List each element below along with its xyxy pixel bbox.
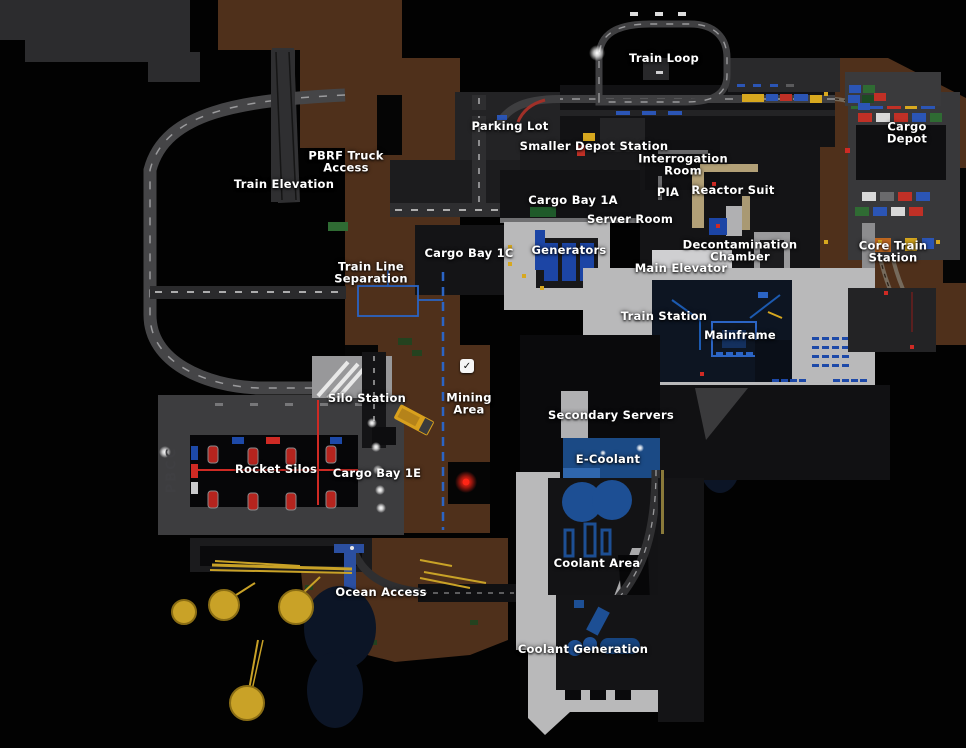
checkbox-checked-icon[interactable]: ✓ bbox=[460, 359, 474, 373]
charcoal-annex bbox=[848, 288, 936, 352]
upper-containers bbox=[845, 72, 941, 110]
e-coolant-area bbox=[563, 438, 660, 480]
map-artwork bbox=[0, 0, 966, 748]
silo-wall-text: PBCC bbox=[165, 447, 180, 494]
core-rooms bbox=[640, 140, 820, 282]
train-elevation-rails bbox=[271, 50, 296, 202]
facility-map[interactable]: Train LoopParking LotSmaller Depot Stati… bbox=[0, 0, 966, 748]
checkmark-glyph: ✓ bbox=[463, 361, 471, 372]
